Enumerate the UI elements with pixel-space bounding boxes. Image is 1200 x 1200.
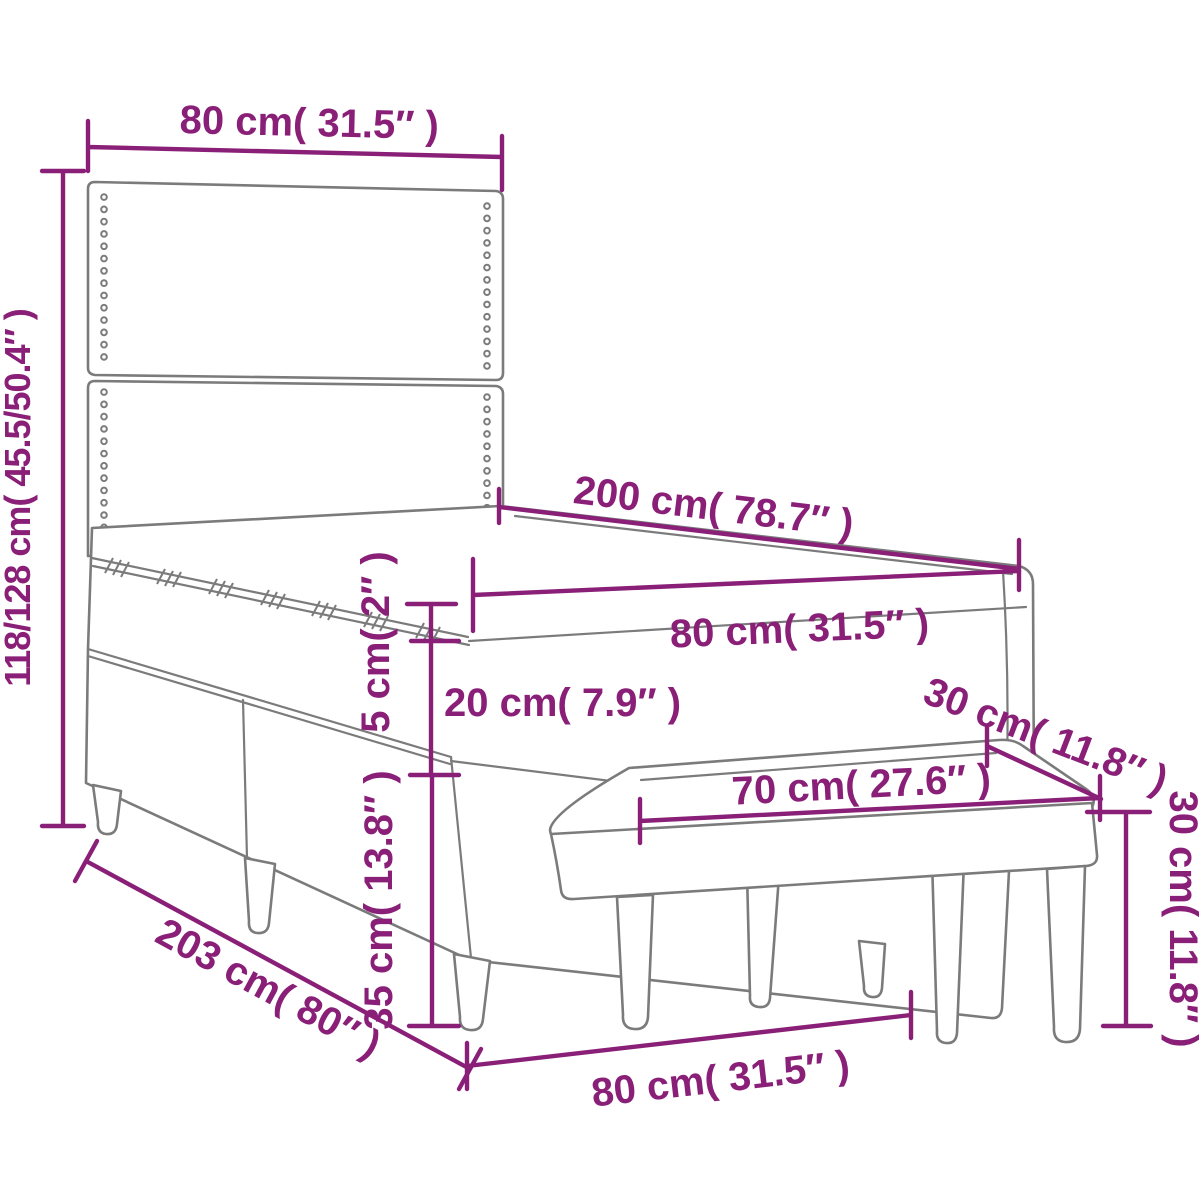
diagram-stage: 80 cm( 31.5″ ) 118/128 cm( 45.5/50.4″ ) … xyxy=(0,0,1200,1200)
bed-leg-front-middle xyxy=(245,858,275,933)
bench-leg-front-left xyxy=(617,895,653,1029)
bed-leg-front-left xyxy=(93,785,121,834)
label-headboard-width: 80 cm( 31.5″ ) xyxy=(179,98,439,148)
label-bed-width-bottom: 80 cm( 31.5″ ) xyxy=(589,1043,852,1116)
label-bench-height: 30 cm( 11.8″ ) xyxy=(1161,790,1200,1047)
headboard xyxy=(88,182,503,556)
label-mattress-thickness: 20 cm( 7.9″ ) xyxy=(444,681,681,725)
bench-leg-front-right xyxy=(1047,866,1085,1042)
dim-line-headboard-height xyxy=(42,171,84,826)
label-total-length: 203 cm( 80″ ) xyxy=(149,910,388,1067)
bed-dimension-diagram: 80 cm( 31.5″ ) 118/128 cm( 45.5/50.4″ ) … xyxy=(0,0,1200,1200)
headboard-panel-top xyxy=(88,182,503,380)
label-base-height: 35 cm( 13.8″ ) xyxy=(357,770,401,1029)
label-headboard-height: 118/128 cm( 45.5/50.4″ ) xyxy=(0,309,38,687)
bed-leg-front-right xyxy=(454,954,490,1030)
bed-leg-foot xyxy=(859,941,885,997)
label-topper-thickness: 5 cm( 2″ ) xyxy=(354,551,398,732)
